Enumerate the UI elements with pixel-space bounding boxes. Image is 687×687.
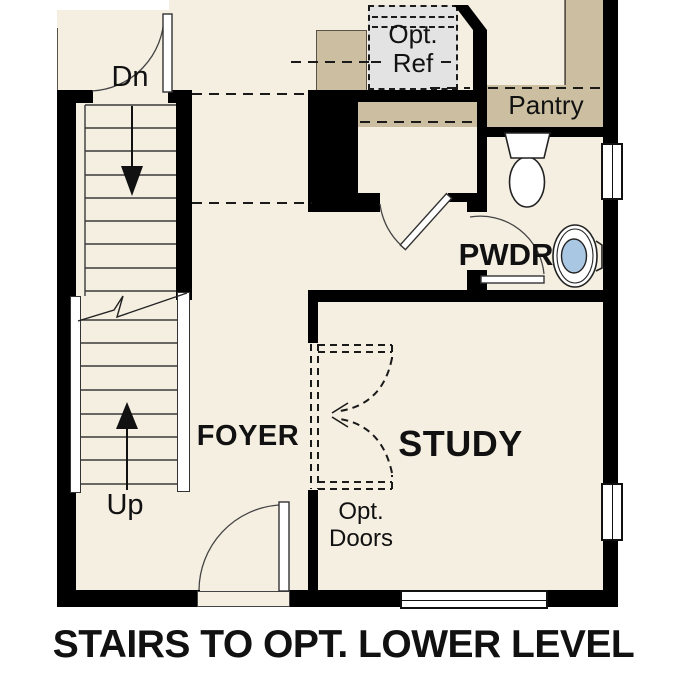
entry-threshold bbox=[197, 591, 290, 607]
floor-plan: Opt. Ref bbox=[0, 0, 687, 687]
wall-segment bbox=[287, 590, 402, 607]
opt-doors-label: Opt. Doors bbox=[318, 498, 404, 552]
wall-segment bbox=[57, 590, 200, 607]
room-label-powder: PWDR bbox=[455, 237, 557, 273]
opt-doors-label-line1: Opt. bbox=[318, 498, 404, 525]
wall-segment bbox=[57, 90, 93, 103]
window-mullion bbox=[402, 600, 546, 601]
floor-edge-line bbox=[57, 28, 58, 90]
plan-caption: STAIRS TO OPT. LOWER LEVEL bbox=[0, 623, 687, 667]
exterior-gap bbox=[57, 0, 169, 10]
opt-ref-label-line1: Opt. bbox=[370, 20, 456, 49]
wall-segment bbox=[448, 193, 487, 202]
window-mullion bbox=[612, 485, 613, 539]
wall-segment bbox=[477, 127, 618, 137]
room-label-study: STUDY bbox=[388, 423, 533, 465]
wall-segment bbox=[176, 90, 192, 300]
window bbox=[601, 143, 623, 200]
pantry-counter-strip bbox=[565, 0, 603, 85]
kitchen-counter bbox=[316, 30, 367, 93]
wall-segment bbox=[467, 202, 487, 212]
opt-ref-box: Opt. Ref bbox=[368, 5, 458, 90]
wall-segment bbox=[308, 90, 358, 212]
opt-ref-label-line2: Ref bbox=[370, 49, 456, 78]
window bbox=[601, 483, 623, 541]
closet-shelf bbox=[358, 102, 477, 127]
wall-segment bbox=[603, 541, 618, 607]
wall-segment bbox=[308, 290, 618, 302]
window-mullion bbox=[612, 145, 613, 198]
room-label-pantry: Pantry bbox=[498, 90, 594, 121]
wall-segment bbox=[603, 200, 618, 483]
wall-segment bbox=[603, 0, 618, 143]
wall-segment bbox=[308, 302, 318, 343]
wall-segment bbox=[358, 193, 380, 212]
stair-handrail-right bbox=[177, 292, 190, 492]
opt-doors-label-line2: Doors bbox=[318, 525, 404, 552]
stair-down-label: Dn bbox=[98, 61, 162, 94]
room-label-foyer: FOYER bbox=[190, 420, 306, 453]
wall-segment bbox=[477, 90, 487, 202]
wall-segment bbox=[358, 90, 487, 102]
window bbox=[400, 590, 548, 609]
dashed-line bbox=[372, 16, 454, 18]
wall-segment bbox=[467, 270, 487, 290]
stair-handrail-left bbox=[70, 296, 81, 493]
stair-up-label: Up bbox=[93, 489, 157, 522]
